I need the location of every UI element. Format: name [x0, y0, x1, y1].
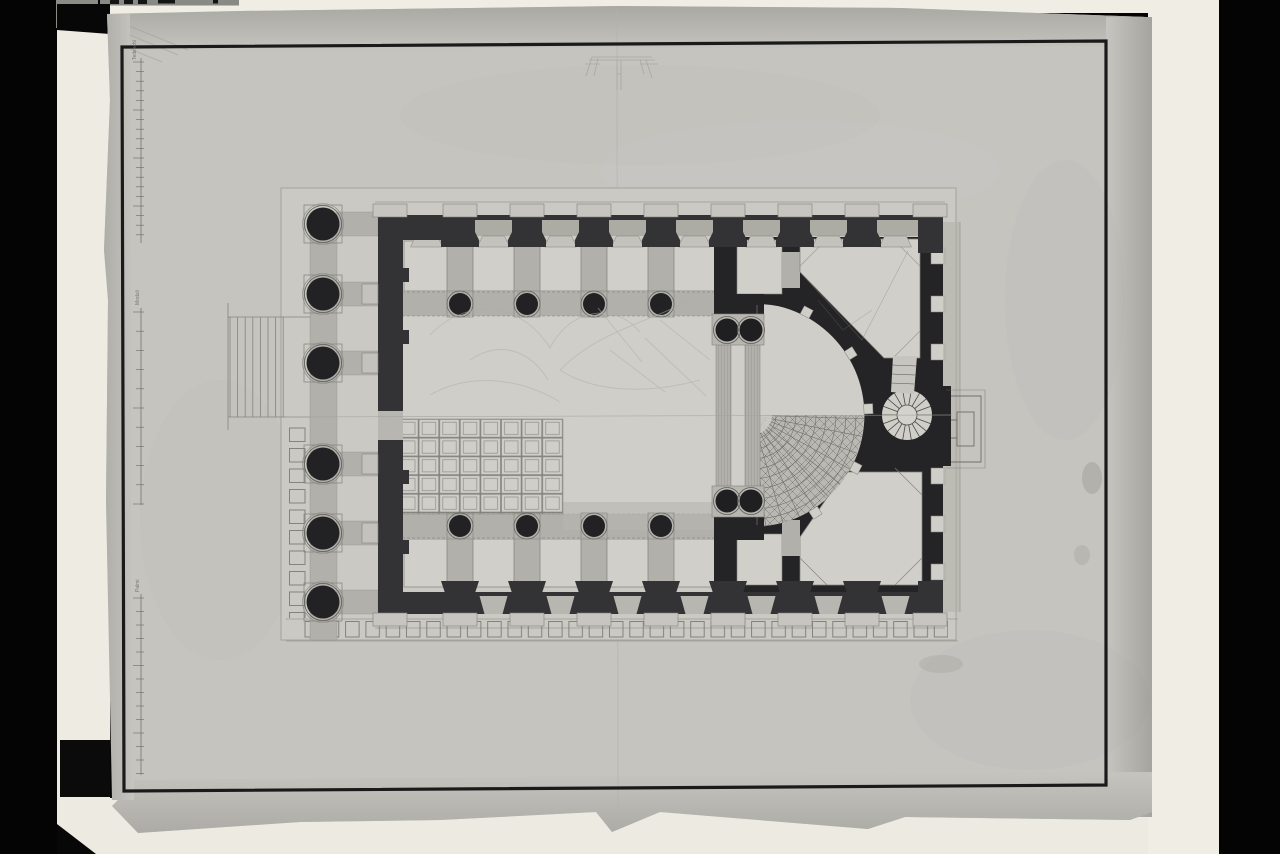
- svg-text:Moduli: Moduli: [135, 290, 141, 305]
- svg-text:Palmi: Palmi: [135, 579, 141, 592]
- svg-text:Tedeschi: Tedeschi: [132, 40, 138, 60]
